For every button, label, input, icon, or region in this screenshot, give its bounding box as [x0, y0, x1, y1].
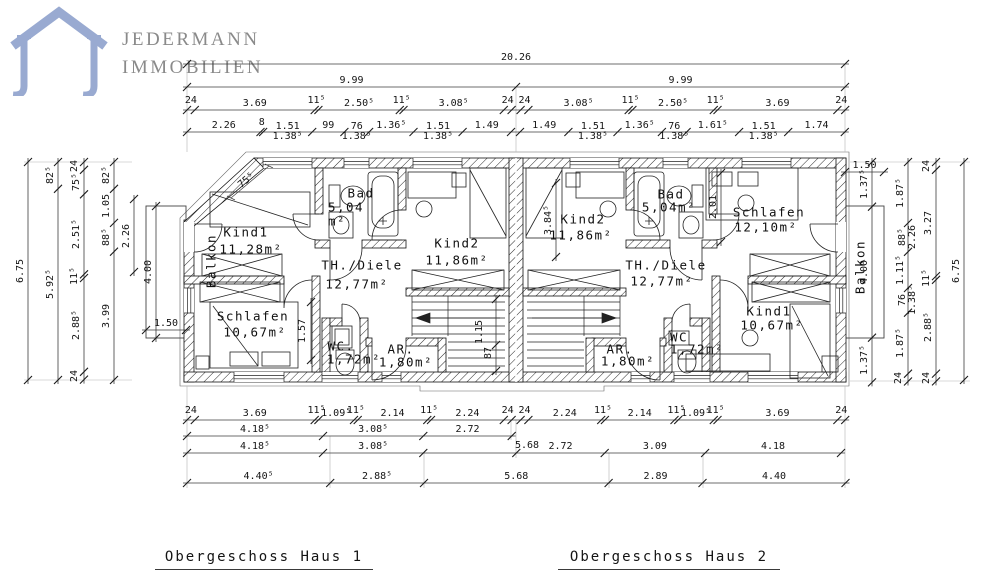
dimension-chains [24, 60, 968, 487]
floor-plan-drawing [0, 0, 1000, 587]
balcony-right [844, 206, 884, 338]
blueprint-page: JEDERMANN IMMOBILIEN [0, 0, 1000, 587]
title-house1-text: Obergeschoss Haus 1 [165, 549, 363, 565]
title-house1: Obergeschoss Haus 1 [155, 549, 373, 570]
title-house2: Obergeschoss Haus 2 [558, 549, 780, 570]
title-house2-text: Obergeschoss Haus 2 [570, 549, 768, 565]
